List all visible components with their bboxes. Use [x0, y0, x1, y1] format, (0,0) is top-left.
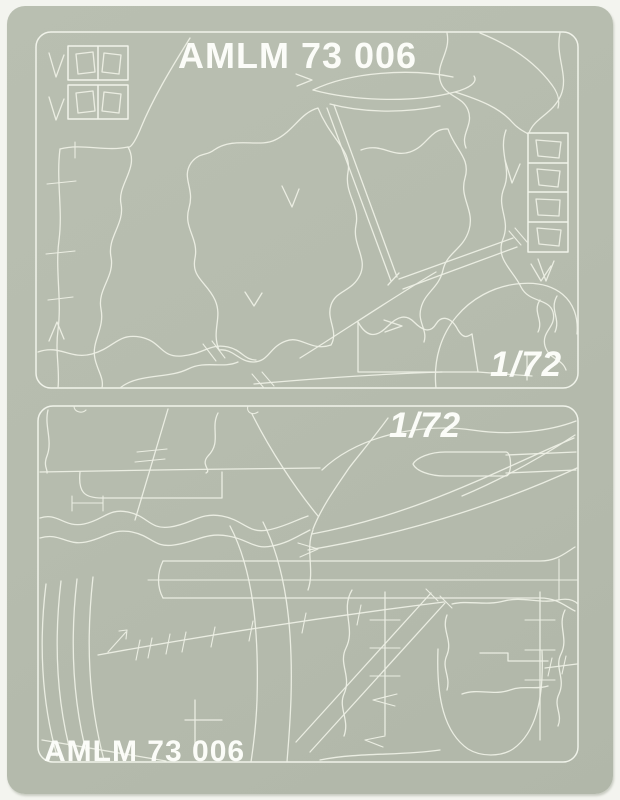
cut-line — [313, 76, 475, 99]
cut-line — [94, 147, 131, 388]
cut-line — [102, 92, 121, 113]
cut-line — [187, 108, 362, 362]
cut-line — [296, 593, 445, 752]
cowl-mask — [438, 649, 543, 755]
cut-line — [254, 372, 442, 384]
cut-line — [102, 53, 121, 74]
cut-line — [358, 317, 472, 336]
cut-line — [529, 33, 564, 133]
cut-line — [73, 579, 88, 759]
cut-line — [509, 228, 527, 245]
cut-line — [40, 511, 308, 531]
cut-line — [80, 472, 222, 498]
cut-lines-svg — [0, 0, 620, 800]
scale-label-bottom-panel: 1/72 — [389, 408, 461, 443]
cut-line — [361, 129, 470, 342]
cut-line — [205, 413, 218, 473]
cut-line — [399, 238, 517, 289]
mask-sheet-photo: AMLM 73 006 1/72 1/72 AMLM 73 006 — [0, 0, 620, 800]
cut-line — [308, 530, 313, 590]
cut-line — [57, 149, 60, 388]
cut-line — [163, 547, 575, 561]
v-mark — [49, 97, 64, 120]
cut-line — [120, 362, 238, 388]
cut-line — [480, 33, 559, 108]
cut-line — [330, 104, 440, 111]
cut-line — [60, 147, 128, 149]
top-panel-cut-lines — [38, 33, 577, 388]
cut-line — [42, 584, 57, 756]
arrow-mark — [365, 736, 385, 747]
top-panel — [36, 32, 578, 388]
cut-line — [536, 140, 561, 158]
sheet-code-header: AMLM 73 006 — [178, 38, 417, 74]
cut-line — [263, 522, 291, 762]
cut-line — [455, 92, 528, 134]
cut-line — [136, 605, 361, 660]
cut-line — [40, 468, 320, 472]
arrow-mark — [108, 630, 127, 652]
cut-line — [313, 418, 388, 529]
cut-line — [40, 530, 310, 547]
cut-line — [445, 615, 449, 690]
v-mark — [538, 259, 554, 281]
cut-line — [537, 169, 560, 187]
cut-line — [358, 322, 478, 372]
cut-line — [76, 91, 95, 113]
cut-line — [252, 372, 274, 388]
cut-line — [537, 228, 561, 246]
v-mark — [49, 322, 64, 341]
cut-line — [327, 105, 399, 285]
bottom-panel — [38, 406, 578, 762]
cut-line — [252, 414, 318, 516]
cut-line — [57, 581, 72, 758]
cut-line — [203, 341, 225, 361]
v-mark — [282, 186, 299, 207]
cut-line — [537, 300, 540, 332]
cut-line — [46, 142, 76, 300]
cut-line — [76, 52, 95, 74]
bottom-panel-cut-lines — [40, 406, 578, 762]
cut-line — [135, 409, 168, 520]
cut-line — [89, 577, 104, 760]
cut-line — [300, 272, 436, 358]
v-mark — [505, 160, 520, 183]
registration-squares-top-left — [49, 46, 128, 120]
cut-line — [308, 468, 577, 550]
cut-line — [135, 449, 167, 462]
cut-line — [554, 296, 557, 332]
cut-line — [462, 686, 548, 694]
cut-line — [45, 410, 49, 473]
cut-line — [501, 130, 566, 370]
cut-line — [320, 750, 440, 760]
cut-line — [528, 133, 568, 252]
bottom-panel-border — [38, 406, 578, 762]
registration-strip-right — [505, 133, 568, 281]
v-mark — [49, 53, 64, 77]
cut-line — [480, 653, 548, 661]
cut-line — [74, 406, 258, 414]
cut-line — [536, 199, 560, 216]
cut-line — [439, 33, 469, 148]
scale-label-top-panel: 1/72 — [490, 347, 562, 382]
sheet-code-footer: AMLM 73 006 — [44, 737, 245, 767]
v-mark — [245, 292, 262, 306]
